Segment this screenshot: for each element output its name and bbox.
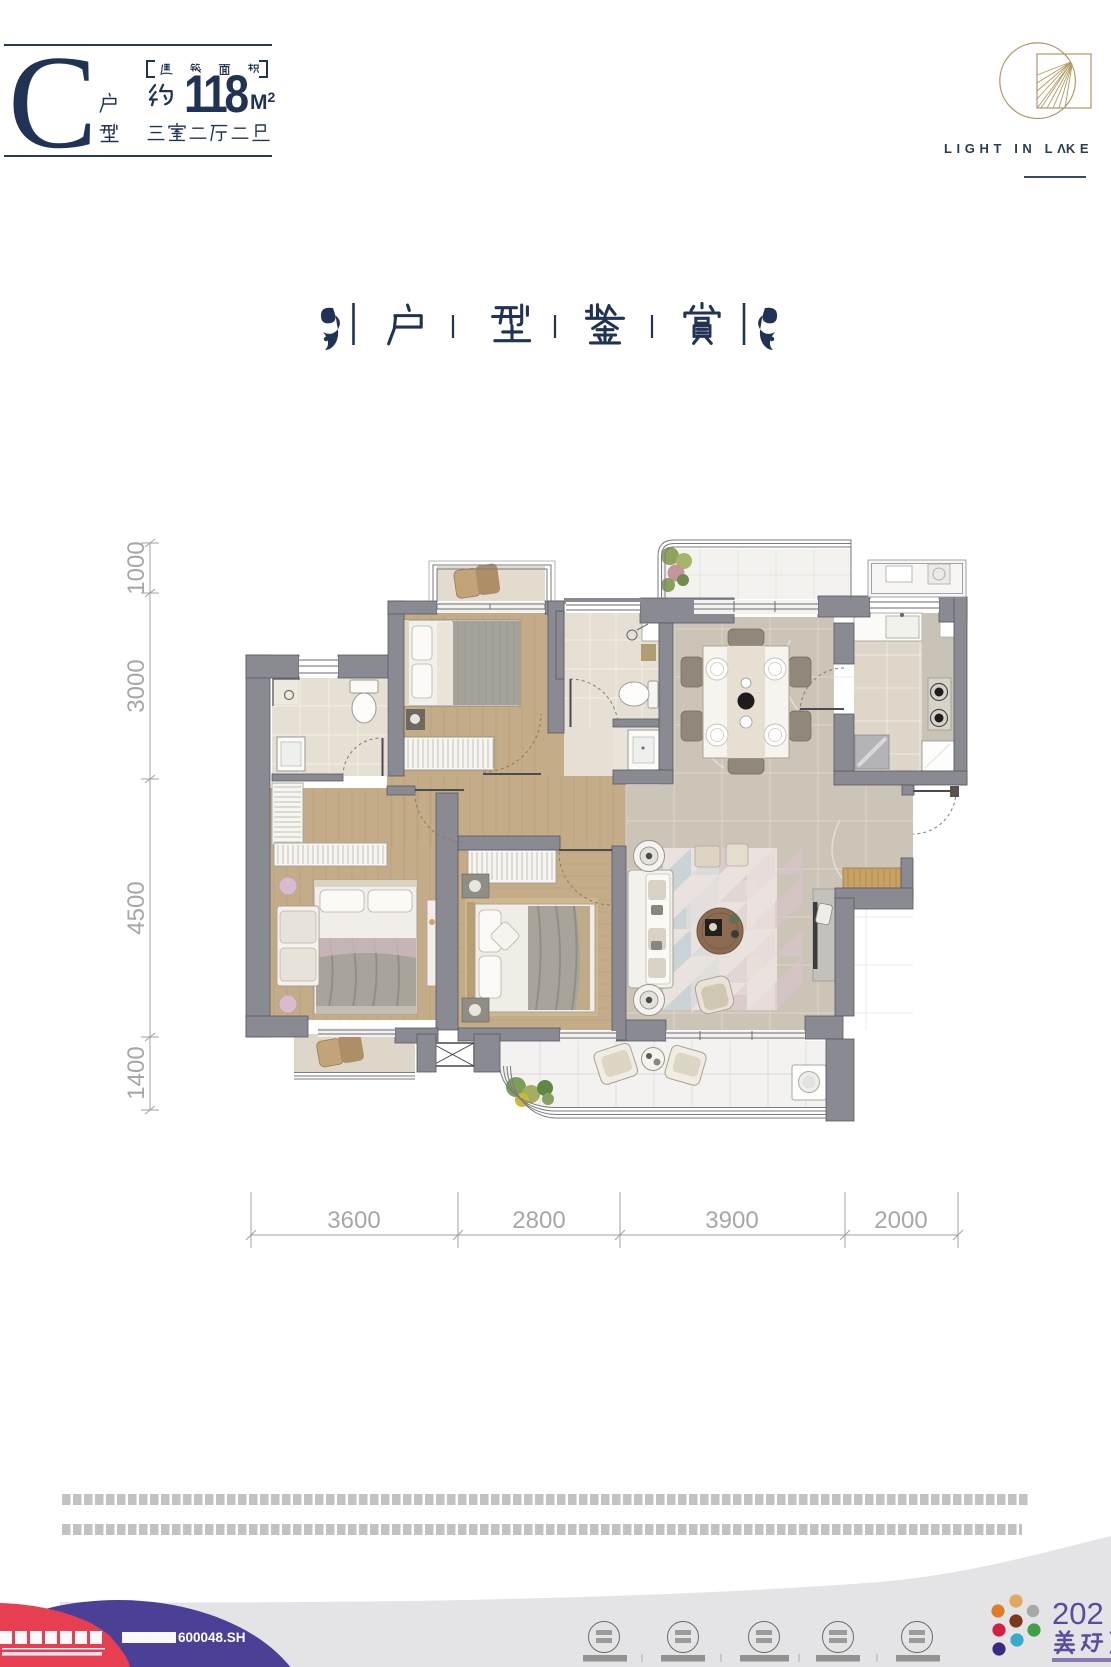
svg-text:202: 202 <box>1052 1596 1104 1631</box>
svg-text:3000: 3000 <box>123 659 150 712</box>
svg-text:3600: 3600 <box>327 1207 380 1234</box>
svg-text:4500: 4500 <box>123 881 150 934</box>
svg-text:2000: 2000 <box>874 1207 927 1234</box>
svg-text:600048.SH: 600048.SH <box>178 1630 246 1645</box>
svg-text:3900: 3900 <box>705 1207 758 1234</box>
svg-text:2800: 2800 <box>512 1207 565 1234</box>
svg-text:1400: 1400 <box>123 1046 150 1099</box>
svg-text:1000: 1000 <box>123 541 150 594</box>
